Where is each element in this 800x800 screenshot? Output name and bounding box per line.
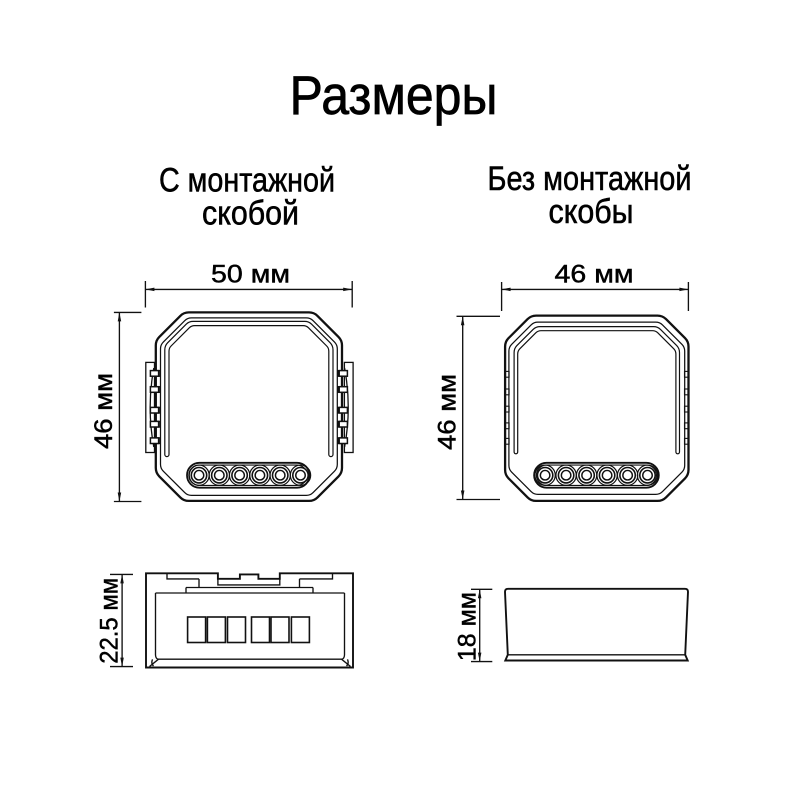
svg-text:46 мм: 46 мм <box>555 261 634 289</box>
svg-text:Размеры: Размеры <box>290 64 498 126</box>
svg-text:50 мм: 50 мм <box>211 261 290 289</box>
svg-text:скобы: скобы <box>549 193 634 231</box>
svg-text:22.5 мм: 22.5 мм <box>96 578 124 664</box>
svg-text:скобой: скобой <box>202 195 299 233</box>
svg-text:46 мм: 46 мм <box>434 374 462 450</box>
svg-text:46 мм: 46 мм <box>90 373 118 449</box>
svg-text:18 мм: 18 мм <box>453 592 481 661</box>
